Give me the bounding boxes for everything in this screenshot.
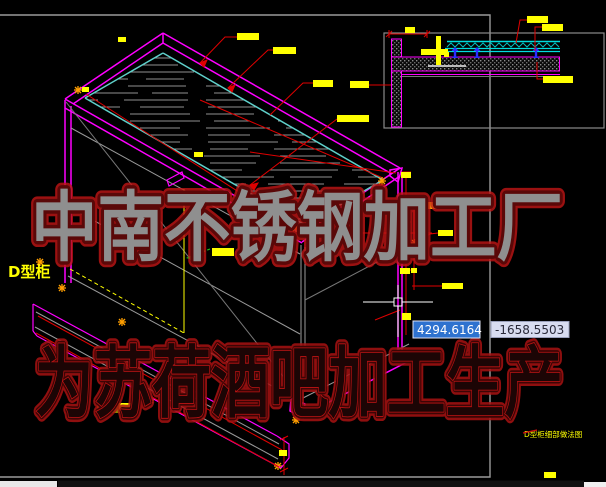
svg-text:为苏荷酒吧加工生产: 为苏荷酒吧加工生产	[35, 339, 563, 429]
watermark-line2: 为苏荷酒吧加工生产 为苏荷酒吧加工生产 为苏荷酒吧加工生产	[35, 339, 563, 429]
cabinet-label: D型柜	[8, 263, 50, 281]
bottom-strip	[0, 481, 606, 487]
svg-text:中南不锈钢加工厂: 中南不锈钢加工厂	[31, 183, 563, 272]
bottom-right-block[interactable]	[584, 482, 606, 487]
label-highlight	[527, 16, 548, 23]
dynamic-input-x-value[interactable]: 4294.6164	[417, 323, 482, 337]
scale-highlight	[544, 472, 556, 478]
label-highlight	[543, 76, 573, 83]
dynamic-input: 4294.6164 -1658.5503	[413, 321, 569, 338]
detail-leaders	[363, 20, 543, 85]
bottom-left-block[interactable]	[0, 481, 57, 487]
drawing-layer: 中南不锈钢加工厂 中南不锈钢加工厂 中南不锈钢加工厂 为苏荷酒吧加工生产 为苏荷…	[0, 0, 606, 487]
watermark-line1: 中南不锈钢加工厂 中南不锈钢加工厂 中南不锈钢加工厂	[31, 183, 563, 272]
dim-text-highlight	[405, 27, 415, 33]
dynamic-input-y-value[interactable]: -1658.5503	[495, 323, 564, 337]
cad-canvas[interactable]: 中南不锈钢加工厂 中南不锈钢加工厂 中南不锈钢加工厂 为苏荷酒吧加工生产 为苏荷…	[0, 0, 606, 487]
label-highlight	[542, 24, 563, 31]
